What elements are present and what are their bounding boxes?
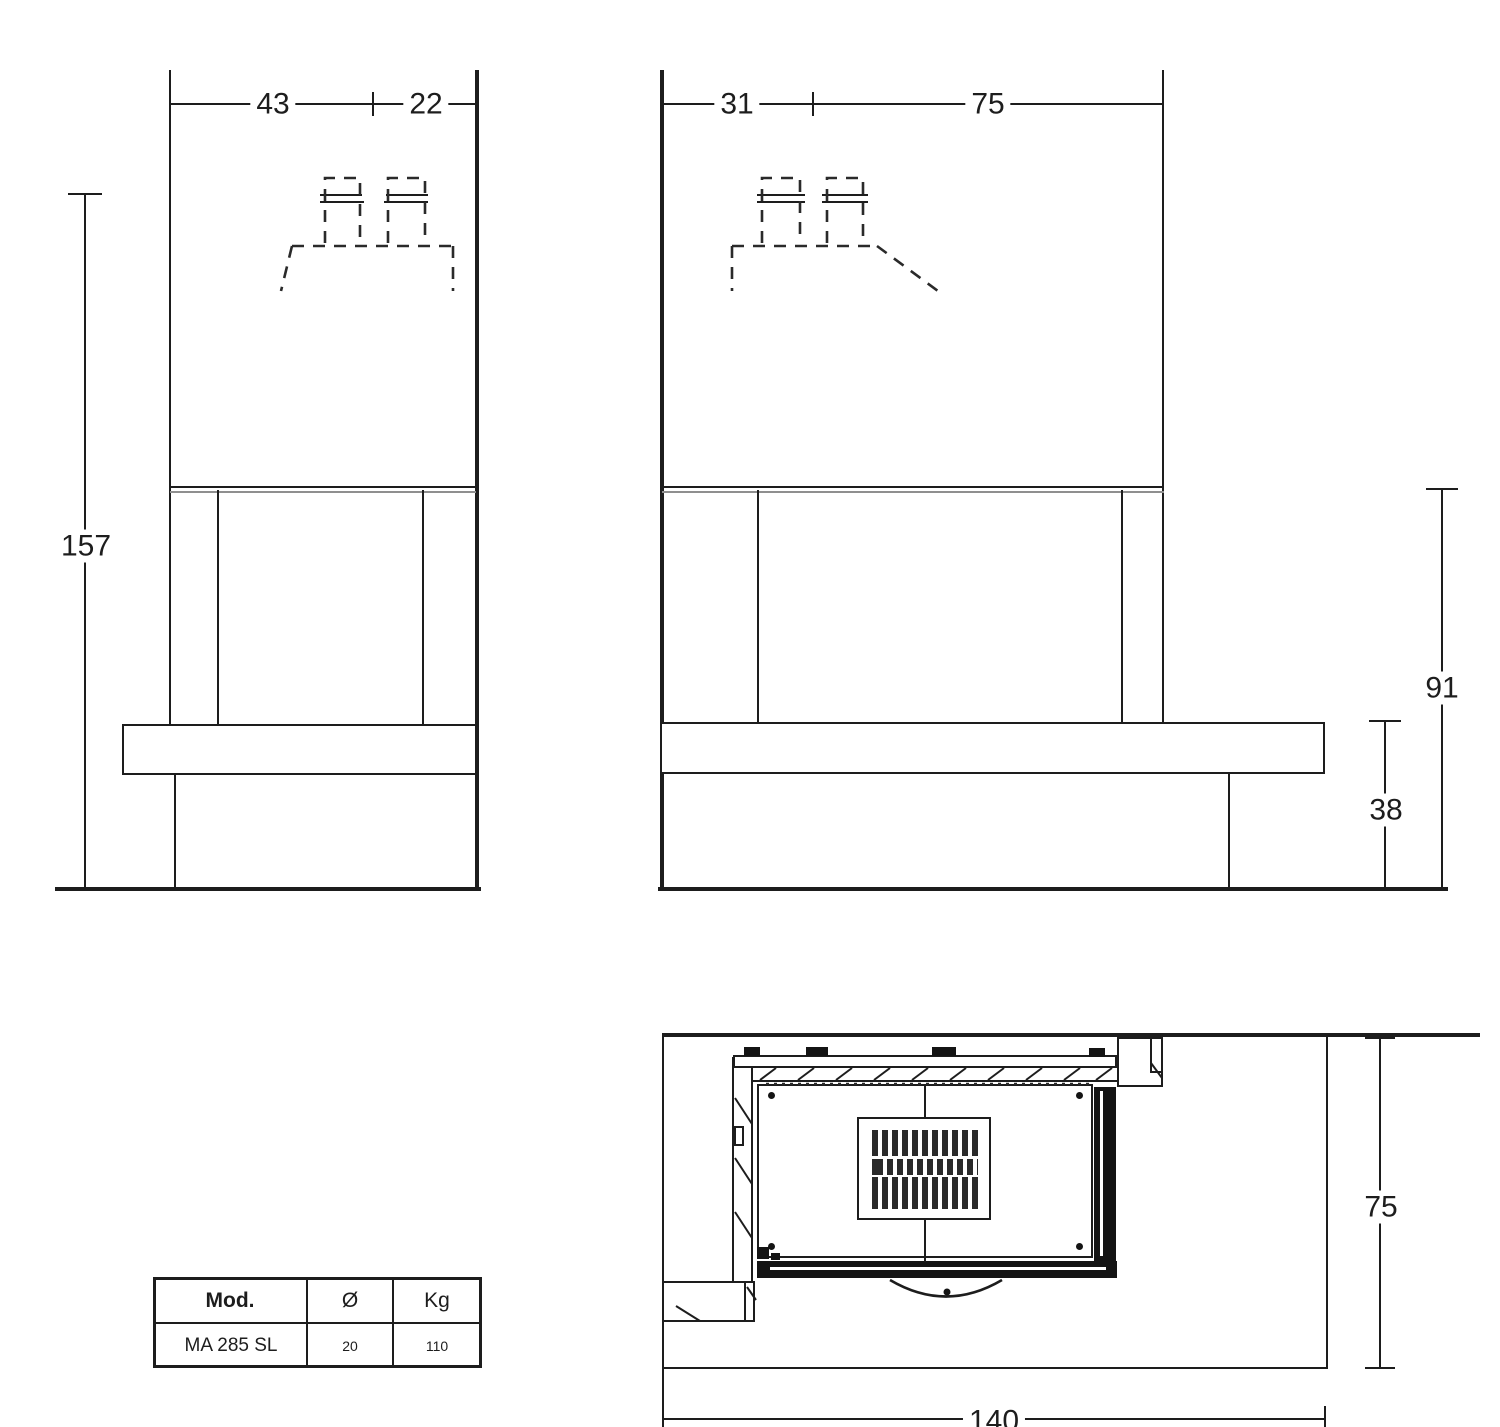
plan-left-jamb-hatch bbox=[735, 1098, 752, 1238]
front-overhang-dim: 22 bbox=[403, 88, 448, 121]
spec-header-weight: Kg bbox=[424, 1289, 450, 1313]
plan-hatch-band bbox=[760, 1068, 1112, 1080]
technical-drawing-sheet: 43 22 157 31 75 91 38 bbox=[0, 0, 1500, 1427]
front-width-dim: 43 bbox=[250, 88, 295, 121]
spec-header-diameter: Ø bbox=[342, 1289, 358, 1313]
side-firebox-height-dim: 91 bbox=[1419, 672, 1464, 705]
spec-value-diameter: 20 bbox=[342, 1338, 358, 1354]
top-width-dim: 140 bbox=[963, 1405, 1025, 1427]
front-flue-dashed-outline bbox=[281, 178, 455, 291]
spec-value-model: MA 285 SL bbox=[185, 1335, 278, 1357]
spec-value-weight: 110 bbox=[426, 1338, 448, 1354]
front-height-dim: 157 bbox=[55, 530, 117, 563]
side-bench-height-dim: 38 bbox=[1363, 794, 1408, 827]
top-depth-dim: 75 bbox=[1358, 1191, 1403, 1224]
side-depth-front-dim: 31 bbox=[714, 88, 759, 121]
plan-bench-end-hatch bbox=[676, 1287, 756, 1321]
side-depth-rear-dim: 75 bbox=[965, 88, 1010, 121]
drawing-overlay bbox=[0, 0, 1500, 1427]
spec-header-mod: Mod. bbox=[206, 1289, 255, 1313]
plan-step-hatch bbox=[1151, 1063, 1162, 1078]
side-flue-dashed-outline bbox=[732, 178, 938, 291]
plan-door-swing-arc bbox=[890, 1280, 1002, 1297]
spec-table-row-divider bbox=[155, 1322, 480, 1324]
